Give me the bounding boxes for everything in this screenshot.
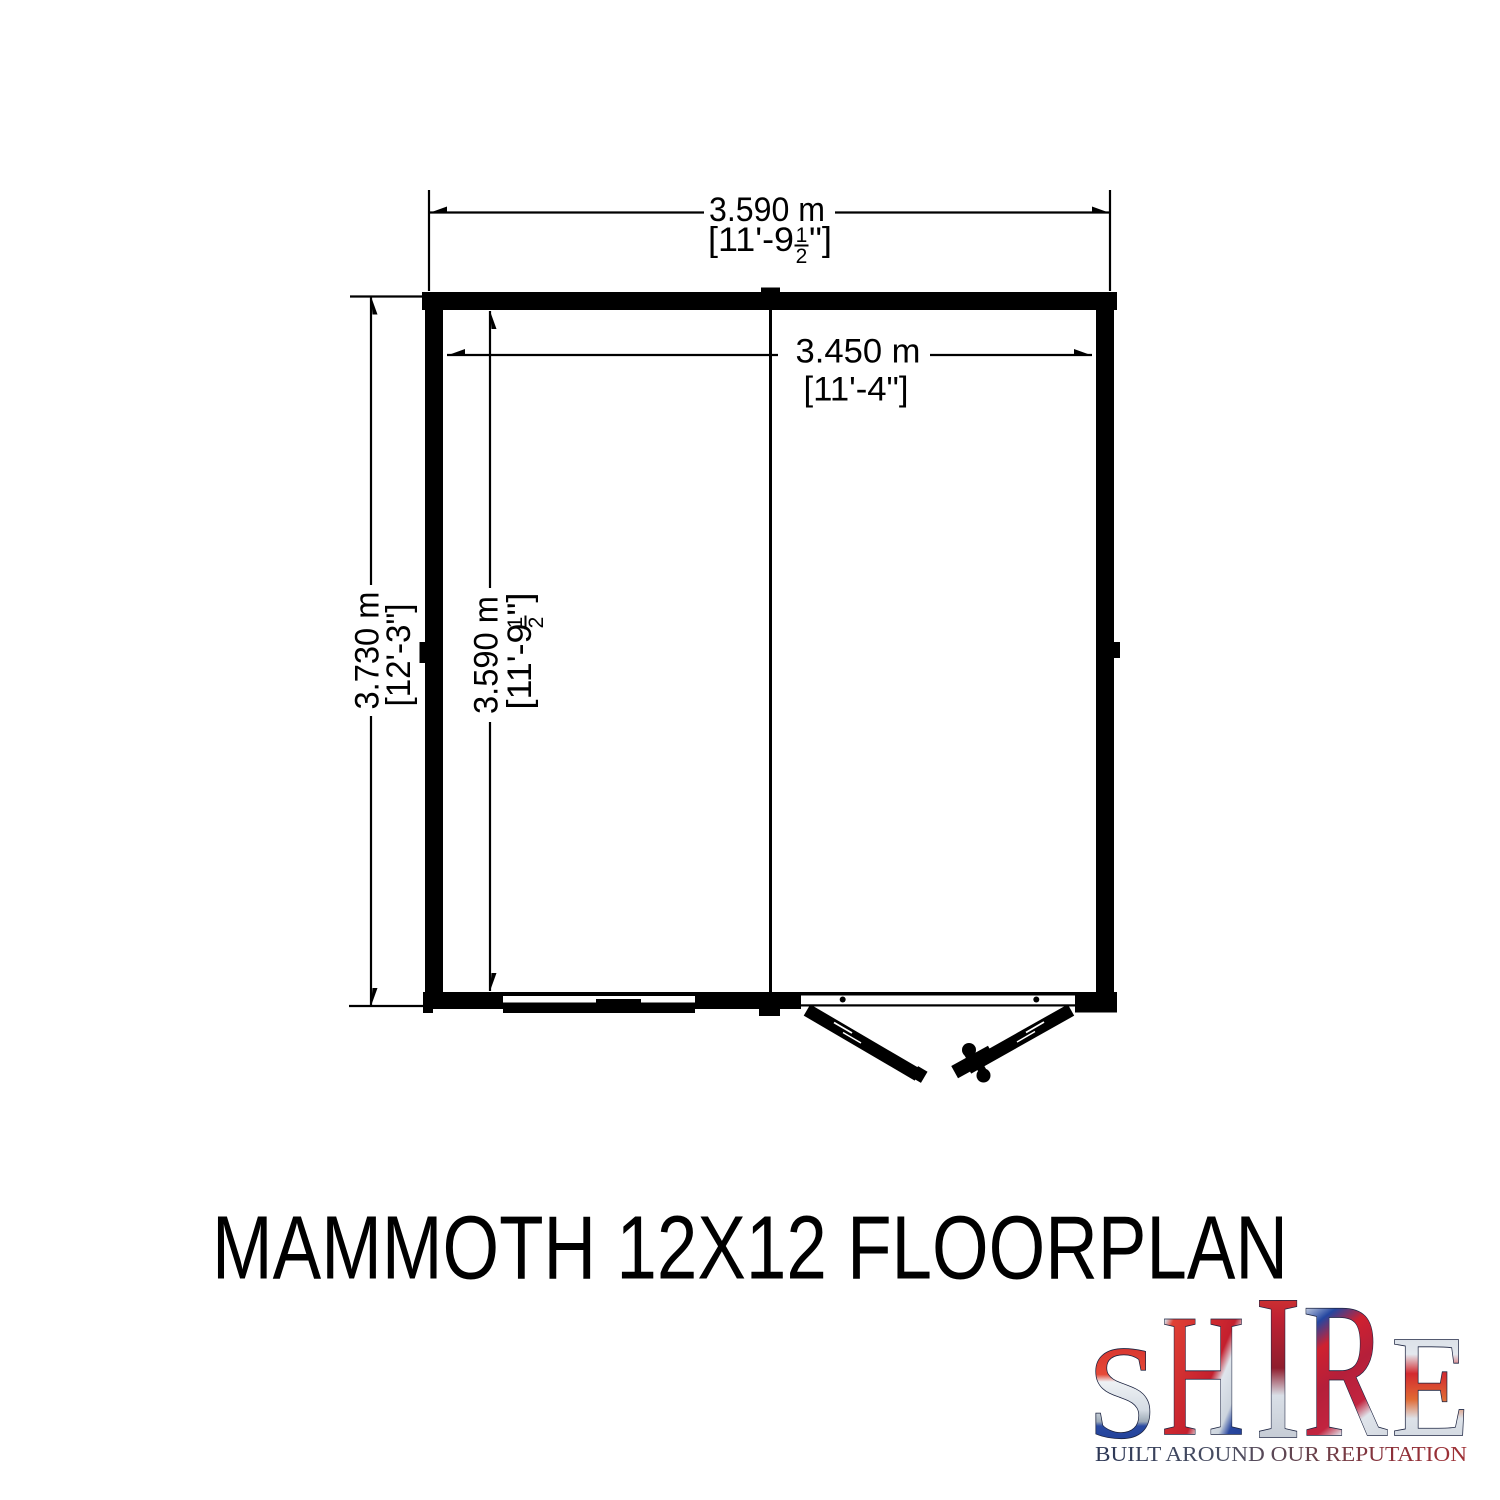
svg-text:[11'-9: [11'-9 (501, 624, 539, 710)
svg-text:1: 1 (504, 617, 527, 629)
svg-text:2: 2 (525, 617, 548, 629)
svg-text:"]: "] (501, 593, 539, 616)
svg-text:[11'-4"]: [11'-4"] (804, 371, 909, 409)
svg-text:1: 1 (796, 224, 808, 247)
svg-text:3.450 m: 3.450 m (796, 333, 921, 371)
svg-text:3.590 m: 3.590 m (468, 596, 506, 714)
svg-text:[12'-3"]: [12'-3"] (380, 604, 418, 707)
svg-text:"]: "] (809, 221, 832, 259)
svg-text:[11'-9: [11'-9 (708, 221, 794, 259)
svg-text:BUILT AROUND OUR REPUTATION: BUILT AROUND OUR REPUTATION (1095, 1442, 1467, 1466)
svg-text:MAMMOTH 12X12 FLOORPLAN: MAMMOTH 12X12 FLOORPLAN (212, 1199, 1288, 1299)
svg-text:2: 2 (796, 245, 808, 268)
